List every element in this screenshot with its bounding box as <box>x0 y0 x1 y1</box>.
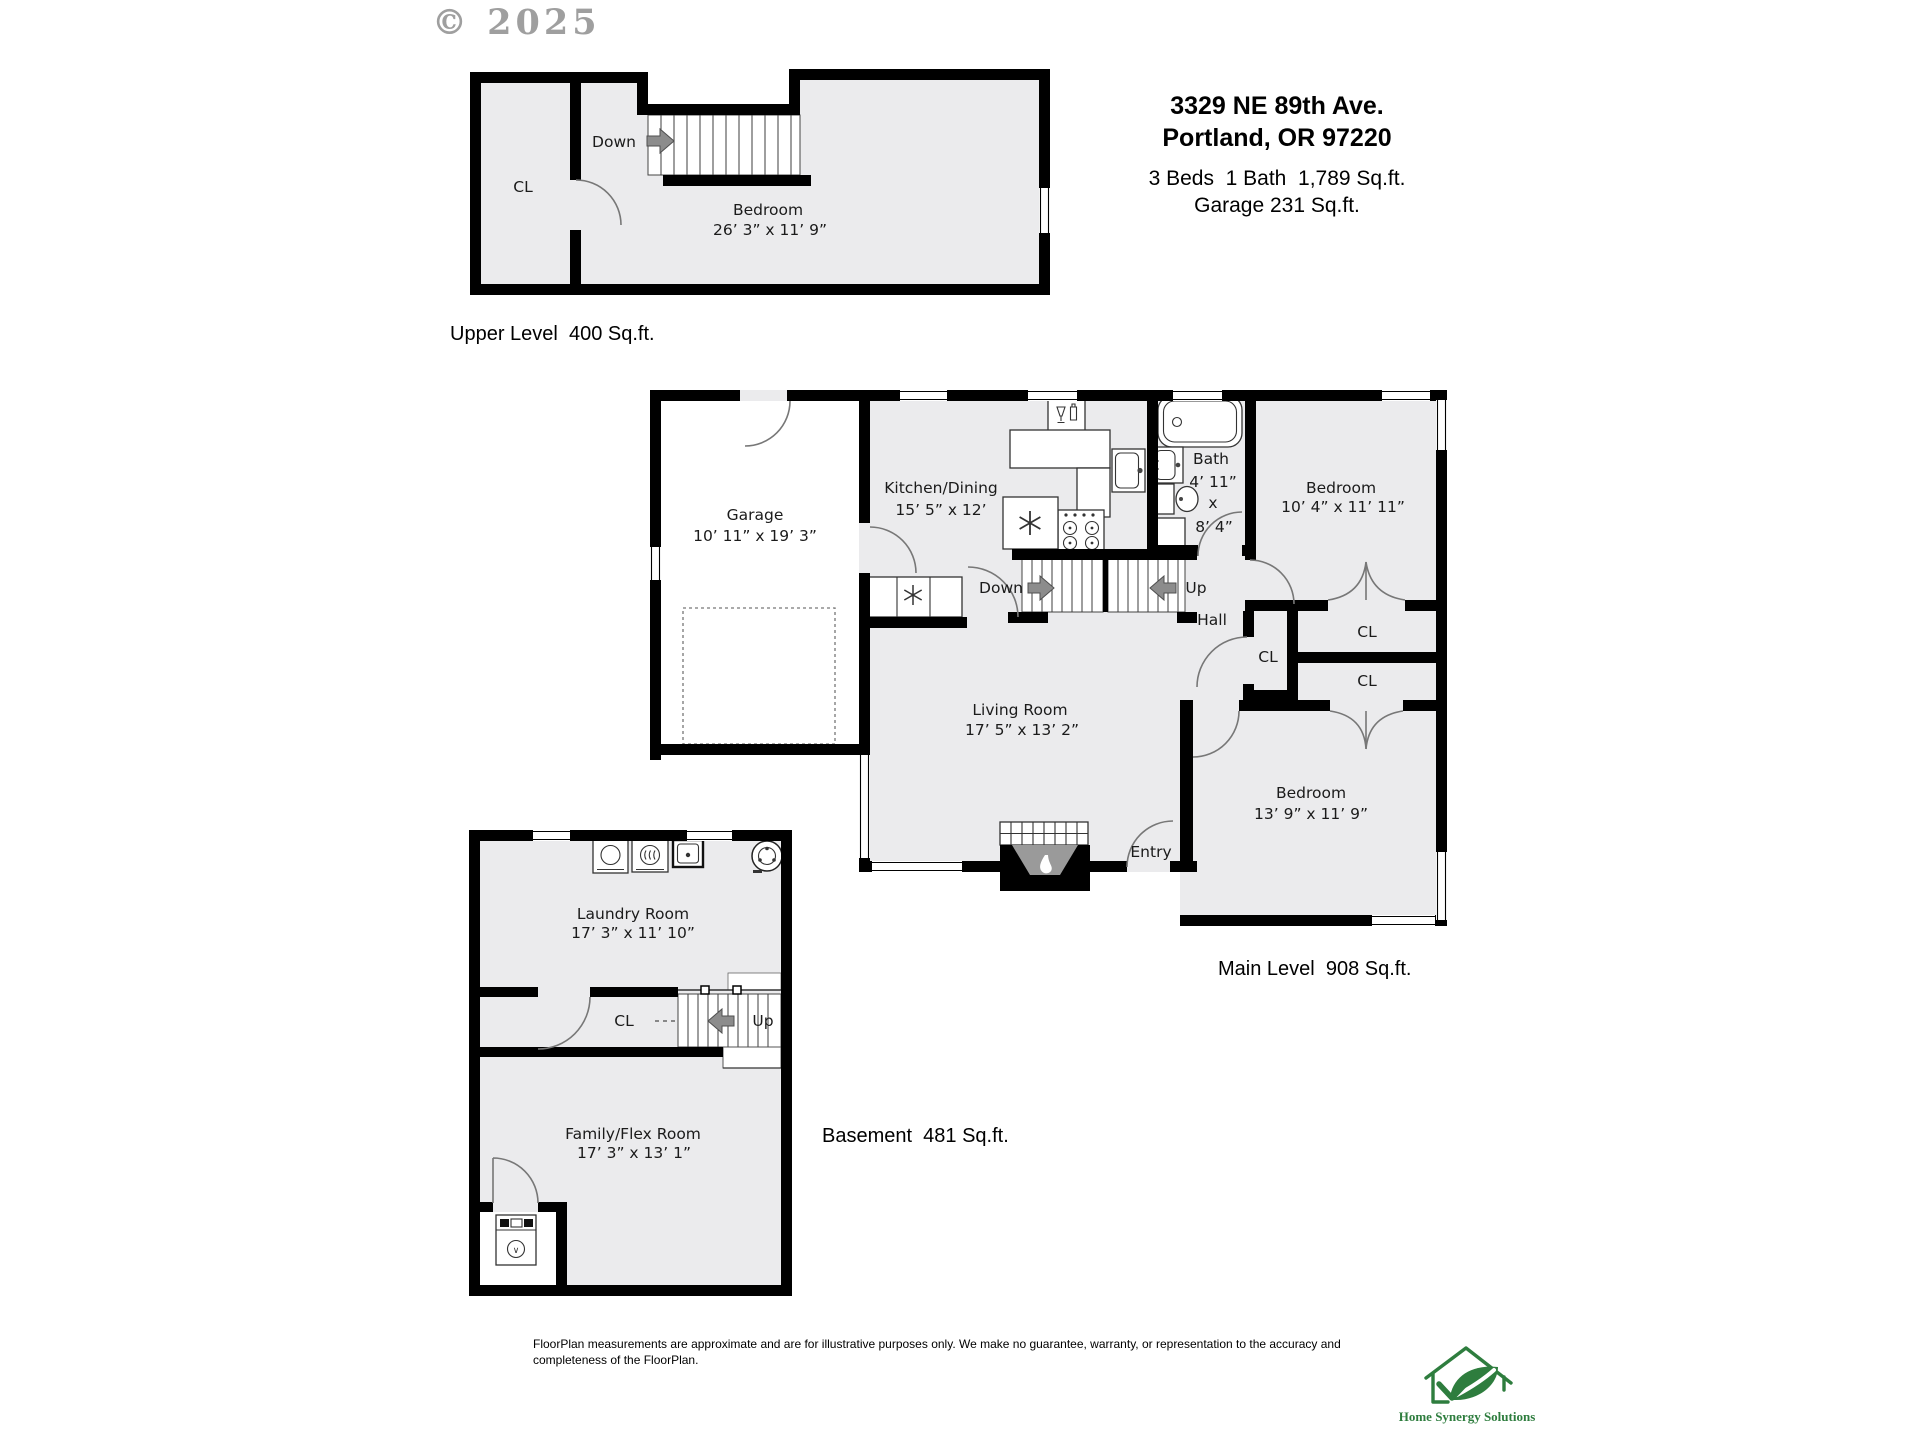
address-line2: Portland, OR 97220 <box>1107 122 1447 154</box>
room-dims-bedroom: 26’ 3” x 11’ 9” <box>713 221 827 239</box>
room-dims-garage: 10’ 11” x 19’ 3” <box>693 527 817 545</box>
company-name: Home Synergy Solutions <box>1392 1409 1542 1425</box>
floorplan-page: © 2025 3329 NE 89th Ave. Portland, OR 97… <box>0 0 1920 1440</box>
room-dims-family: 17’ 3” x 13’ 1” <box>577 1144 691 1162</box>
basement-caption: Basement 481 Sq.ft. <box>822 1125 1009 1148</box>
basement-plan: ∨ <box>467 826 802 1301</box>
room-dims-bath-w: 4’ 11” <box>1189 473 1236 491</box>
room-dims-kitchen: 15’ 5” x 12’ <box>895 501 986 519</box>
closet-label: CL <box>513 178 533 196</box>
door-jamb <box>733 986 741 994</box>
room-dims-bedroom-br: 13’ 9” x 11’ 9” <box>1254 805 1368 823</box>
freezer-counter <box>865 577 962 617</box>
stair-notch-exterior <box>637 62 800 104</box>
room-label-living: Living Room <box>972 701 1067 719</box>
fireplace-icon <box>1000 822 1090 891</box>
copyright-watermark: © 2025 <box>432 2 601 43</box>
kitchen-counter <box>1010 430 1110 468</box>
bathtub-icon <box>1158 396 1242 447</box>
sink-icon <box>1112 449 1145 492</box>
closet-label-bottom: CL <box>1357 672 1377 690</box>
beds-baths-sqft: 3 Beds 1 Bath 1,789 Sq.ft. <box>1107 165 1447 192</box>
closet-label: CL <box>614 1012 634 1030</box>
stairs-down-label: Down <box>592 133 636 151</box>
washer-icon <box>593 840 628 873</box>
upper-level-plan: CL Down Bedroom 26’ 3” x 11’ 9” <box>466 62 1056 302</box>
garage-floor <box>661 401 859 744</box>
closet-label-top: CL <box>1357 623 1377 641</box>
room-label-garage: Garage <box>727 506 784 524</box>
disclaimer-text: FloorPlan measurements are approximate a… <box>533 1337 1401 1368</box>
dishwasher-icon <box>1048 398 1085 433</box>
room-dims-laundry: 17’ 3” x 11’ 10” <box>571 924 695 942</box>
address-block: 3329 NE 89th Ave. Portland, OR 97220 3 B… <box>1107 90 1447 219</box>
refrigerator-icon <box>1003 497 1058 549</box>
stove-icon <box>1058 510 1104 550</box>
house-leaf-logo-icon <box>1408 1340 1526 1406</box>
address-line1: 3329 NE 89th Ave. <box>1107 90 1447 122</box>
room-label-family: Family/Flex Room <box>565 1125 701 1143</box>
room-dims-bedroom-tr: 10’ 4” x 11’ 11” <box>1281 498 1405 516</box>
main-level-caption: Main Level 908 Sq.ft. <box>1218 958 1411 981</box>
upper-level-caption: Upper Level 400 Sq.ft. <box>450 323 655 346</box>
room-label-bedroom-br: Bedroom <box>1276 784 1346 802</box>
stairs-up-label: Up <box>752 1012 773 1030</box>
garage-sqft: Garage 231 Sq.ft. <box>1107 192 1447 219</box>
stairs-down-upper <box>648 115 800 175</box>
room-label-bedroom: Bedroom <box>733 201 803 219</box>
company-logo: Home Synergy Solutions <box>1392 1340 1542 1425</box>
stair-landing <box>723 1047 781 1068</box>
room-label-bath: Bath <box>1193 450 1229 468</box>
room-dims-bath-h: 8’ 4” <box>1195 518 1233 536</box>
room-label-laundry: Laundry Room <box>577 905 689 923</box>
furnace-icon: ∨ <box>496 1215 536 1265</box>
room-dims-bath-x: x <box>1208 494 1217 512</box>
window <box>1039 188 1050 233</box>
closet-label-hall: CL <box>1258 648 1278 666</box>
entry-label: Entry <box>1130 843 1171 861</box>
room-label-kitchen: Kitchen/Dining <box>884 479 998 497</box>
hall-label: Hall <box>1197 611 1227 629</box>
stairs-up-label: Up <box>1185 579 1206 597</box>
laundry-sink-icon <box>673 840 703 867</box>
stairs-down-label: Down <box>979 579 1023 597</box>
room-label-bedroom-tr: Bedroom <box>1306 479 1376 497</box>
dryer-icon <box>632 840 668 872</box>
room-dims-living: 17’ 5” x 13’ 2” <box>965 721 1079 739</box>
svg-text:∨: ∨ <box>513 1246 520 1256</box>
door-jamb <box>701 986 709 994</box>
